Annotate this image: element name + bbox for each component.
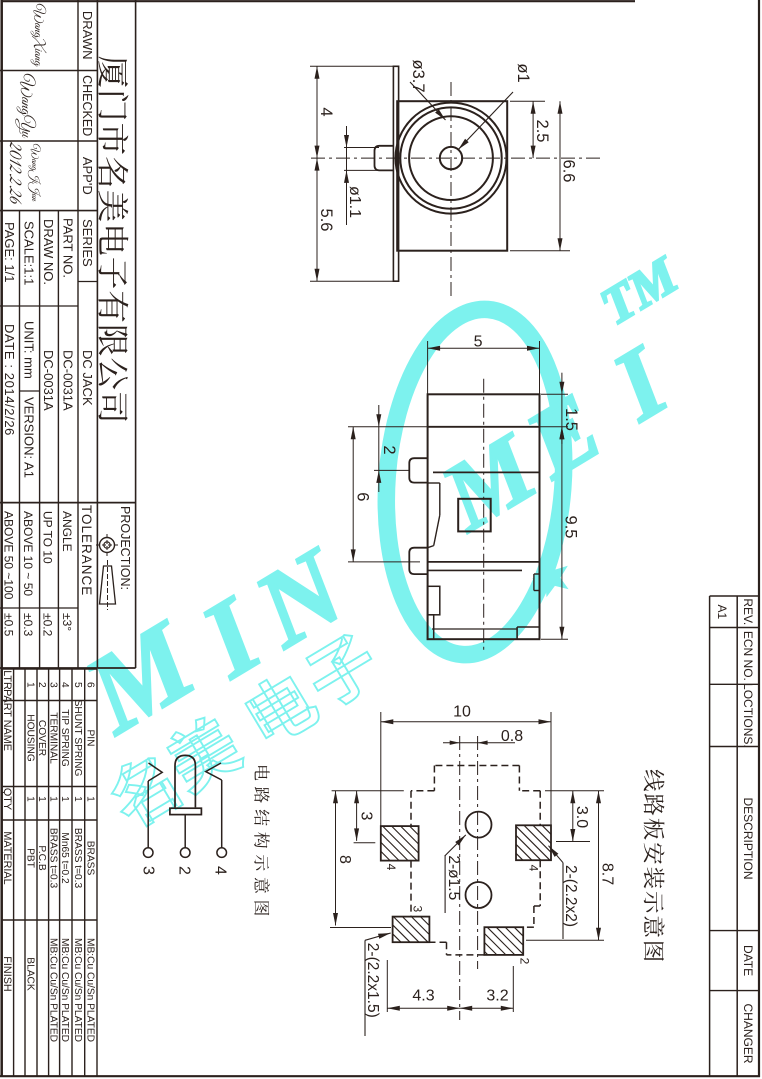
svg-text:PART NO.: PART NO. xyxy=(61,218,76,278)
svg-text:ABOVE 50 ~100: ABOVE 50 ~100 xyxy=(2,511,16,600)
svg-text:ANGLE: ANGLE xyxy=(60,511,74,552)
svg-text:2.5: 2.5 xyxy=(533,120,551,143)
svg-text:Mn65 t=0.2: Mn65 t=0.2 xyxy=(59,832,70,884)
svg-text:1: 1 xyxy=(24,796,35,802)
svg-text:2: 2 xyxy=(518,958,532,965)
svg-text:2: 2 xyxy=(380,445,398,454)
svg-text:4: 4 xyxy=(384,864,398,871)
svg-text:4.3: 4.3 xyxy=(412,988,434,1005)
svg-text:PAGE: 1/1: PAGE: 1/1 xyxy=(2,222,17,282)
svg-text:BRASS t=0.3: BRASS t=0.3 xyxy=(72,828,83,889)
svg-text:CHANGER: CHANGER xyxy=(741,1003,755,1063)
svg-text:LOCTIONS.: LOCTIONS. xyxy=(741,683,755,748)
svg-text:PART NAME: PART NAME xyxy=(1,689,13,751)
svg-text:ø1: ø1 xyxy=(514,63,532,82)
svg-text:2: 2 xyxy=(176,866,193,875)
svg-text:FINISH: FINISH xyxy=(1,956,13,991)
svg-text:10: 10 xyxy=(453,704,471,721)
svg-text:2: 2 xyxy=(36,682,47,688)
svg-text:6: 6 xyxy=(85,682,96,688)
svg-text:SHUNT SPRING: SHUNT SPRING xyxy=(72,700,83,777)
svg-text:MB:Cu Cu/Sn PLATED: MB:Cu Cu/Sn PLATED xyxy=(48,938,59,1042)
svg-text:5: 5 xyxy=(72,682,83,688)
svg-text:3: 3 xyxy=(48,682,59,688)
svg-text:5: 5 xyxy=(474,334,483,351)
svg-text:CHECKED: CHECKED xyxy=(80,75,94,136)
svg-text:DATE: DATE xyxy=(741,945,755,976)
svg-text:PIN: PIN xyxy=(85,730,96,747)
svg-text:ECN NO.: ECN NO. xyxy=(741,631,755,681)
svg-text:UP TO 10: UP TO 10 xyxy=(41,511,55,564)
svg-text:DC-0031A: DC-0031A xyxy=(61,350,76,411)
svg-text:1: 1 xyxy=(59,796,70,802)
svg-text:HOUSING: HOUSING xyxy=(24,714,35,762)
svg-text:UNIT: mm: UNIT: mm xyxy=(22,321,37,379)
svg-text:±0.3: ±0.3 xyxy=(21,613,35,637)
svg-text:2-(2.2x1.5): 2-(2.2x1.5) xyxy=(364,943,381,1018)
svg-text:3: 3 xyxy=(411,905,425,912)
svg-text:BRASS: BRASS xyxy=(85,841,96,876)
svg-text:4: 4 xyxy=(527,865,541,872)
svg-text:DESCRIPTION: DESCRIPTION xyxy=(741,797,755,879)
svg-text:SERIES: SERIES xyxy=(80,219,95,267)
svg-text:PROJECTION:: PROJECTION: xyxy=(118,506,132,590)
svg-text:APP'D: APP'D xyxy=(80,157,95,195)
svg-text:1.5: 1.5 xyxy=(562,408,580,431)
svg-text:±0.5: ±0.5 xyxy=(2,613,16,637)
svg-text:ø1.1: ø1.1 xyxy=(346,186,363,218)
svg-text:DC JACK: DC JACK xyxy=(80,350,95,406)
svg-text:3: 3 xyxy=(140,866,157,875)
svg-text:9.5: 9.5 xyxy=(562,516,580,539)
svg-text:MB:Cu Cu/Sn PLATED: MB:Cu Cu/Sn PLATED xyxy=(72,938,83,1042)
svg-text:DC-0031A: DC-0031A xyxy=(41,350,56,411)
svg-text:QTY: QTY xyxy=(1,788,13,810)
svg-text:DRAWN: DRAWN xyxy=(80,11,95,60)
svg-text:MATERIAL: MATERIAL xyxy=(1,831,13,884)
svg-text:DRAW NO.: DRAW NO. xyxy=(41,219,56,285)
svg-text:3.2: 3.2 xyxy=(486,988,508,1005)
svg-text:1: 1 xyxy=(48,796,59,802)
svg-text:0.8: 0.8 xyxy=(501,728,523,745)
svg-text:4: 4 xyxy=(59,682,70,688)
svg-text:8.7: 8.7 xyxy=(599,863,616,885)
svg-text:BRASS t=0.3: BRASS t=0.3 xyxy=(48,828,59,889)
svg-text:PBT: PBT xyxy=(24,848,35,868)
svg-text:2-ø1.5: 2-ø1.5 xyxy=(445,855,462,900)
svg-text:SCALE:1:1: SCALE:1:1 xyxy=(22,221,37,285)
svg-text:1: 1 xyxy=(72,796,83,802)
svg-text:MB:Cu Cu/Sn PLATED: MB:Cu Cu/Sn PLATED xyxy=(85,938,96,1042)
svg-text:1: 1 xyxy=(36,796,47,802)
svg-text:BLACK: BLACK xyxy=(24,957,35,991)
svg-text:VERSION: A1: VERSION: A1 xyxy=(22,397,37,478)
svg-text:TIP SPRING: TIP SPRING xyxy=(59,709,70,767)
svg-text:TERMINAL: TERMINAL xyxy=(48,712,59,764)
svg-text:4: 4 xyxy=(212,866,229,875)
svg-text:8: 8 xyxy=(336,855,353,864)
svg-text:5.6: 5.6 xyxy=(317,209,335,232)
svg-text:TOLERANCE: TOLERANCE xyxy=(79,505,94,596)
svg-text:6: 6 xyxy=(354,492,372,501)
svg-text:A1: A1 xyxy=(715,604,729,619)
svg-text:REV.: REV. xyxy=(741,598,755,625)
svg-text:±3°: ±3° xyxy=(60,613,74,631)
svg-text:2-(2.2x2): 2-(2.2x2) xyxy=(562,865,579,927)
svg-text:3.0: 3.0 xyxy=(573,806,590,828)
svg-text:LTR: LTR xyxy=(1,670,13,690)
svg-text:DATE : 2014/2/26: DATE : 2014/2/26 xyxy=(2,324,17,436)
svg-text:6.6: 6.6 xyxy=(560,160,578,183)
svg-text:3: 3 xyxy=(358,812,375,821)
svg-text:COVER: COVER xyxy=(36,720,47,756)
svg-text:MB:Cu Cu/Sn PLATED: MB:Cu Cu/Sn PLATED xyxy=(59,938,70,1042)
svg-text:±0.2: ±0.2 xyxy=(41,613,55,637)
svg-text:4: 4 xyxy=(317,107,335,116)
svg-text:ø3.7: ø3.7 xyxy=(409,59,427,92)
svg-text:1: 1 xyxy=(24,682,35,688)
svg-text:1: 1 xyxy=(85,796,96,802)
svg-text:ABOVE 10 ~ 50: ABOVE 10 ~ 50 xyxy=(21,511,35,596)
svg-text:P.C.B: P.C.B xyxy=(36,845,47,870)
